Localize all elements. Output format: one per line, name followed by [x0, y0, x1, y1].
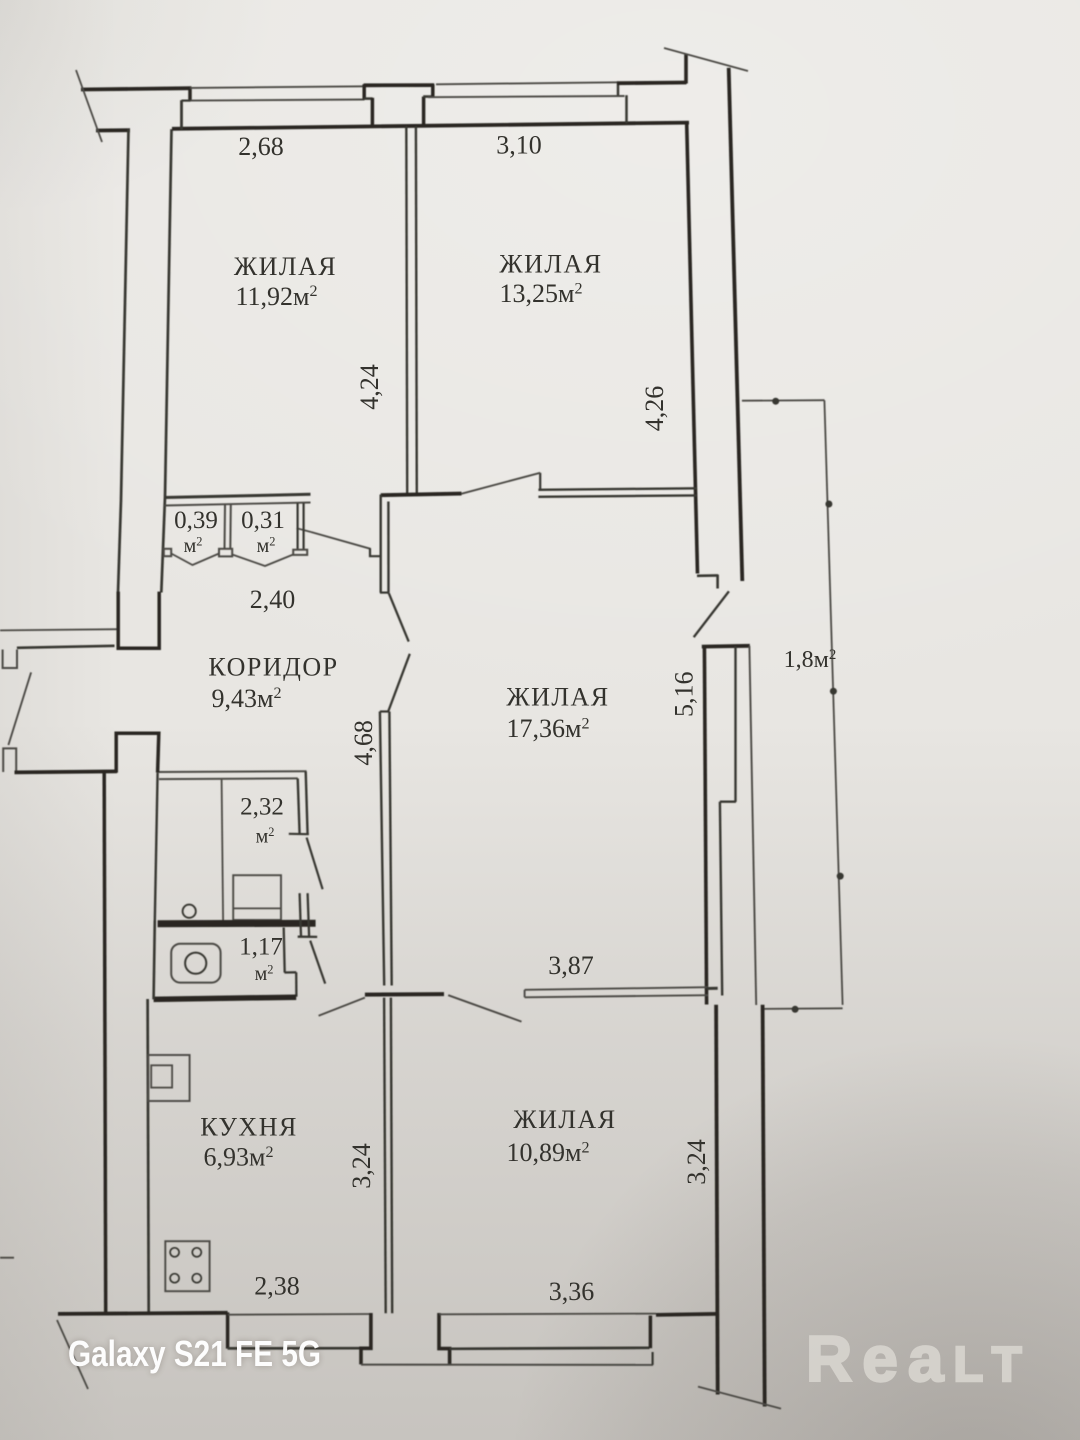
svg-text:ЖИЛАЯ: ЖИЛАЯ [513, 1105, 616, 1134]
svg-text:6,93м2: 6,93м2 [204, 1143, 274, 1172]
svg-text:9,43м2: 9,43м2 [212, 684, 282, 713]
svg-text:10,89м2: 10,89м2 [507, 1138, 590, 1167]
svg-text:КОРИДОР: КОРИДОР [208, 652, 338, 681]
svg-text:11,92м2: 11,92м2 [235, 282, 317, 311]
svg-text:0,31: 0,31 [241, 507, 285, 534]
svg-text:0,39: 0,39 [174, 507, 218, 534]
svg-text:3,24: 3,24 [682, 1139, 711, 1185]
svg-text:м2: м2 [256, 825, 275, 848]
svg-text:4,68: 4,68 [349, 720, 378, 766]
svg-text:1,17: 1,17 [239, 934, 283, 961]
svg-text:17,36м2: 17,36м2 [507, 714, 590, 743]
svg-text:3,24: 3,24 [347, 1143, 376, 1189]
svg-text:1,8м2: 1,8м2 [784, 647, 837, 673]
svg-text:ЖИЛАЯ: ЖИЛАЯ [506, 683, 609, 712]
svg-text:м2: м2 [184, 534, 203, 557]
svg-text:2,68: 2,68 [238, 132, 284, 161]
svg-text:м2: м2 [257, 534, 276, 557]
svg-text:3,87: 3,87 [548, 951, 594, 980]
svg-text:ЖИЛАЯ: ЖИЛАЯ [234, 252, 337, 281]
svg-text:4,24: 4,24 [355, 364, 384, 410]
svg-text:4,26: 4,26 [640, 386, 669, 432]
svg-text:5,16: 5,16 [669, 671, 698, 717]
svg-text:2,32: 2,32 [240, 794, 284, 821]
svg-text:2,38: 2,38 [254, 1272, 300, 1301]
svg-text:13,25м2: 13,25м2 [500, 279, 583, 308]
svg-text:ЖИЛАЯ: ЖИЛАЯ [499, 250, 602, 279]
svg-text:КУХНЯ: КУХНЯ [200, 1113, 298, 1142]
svg-text:3,36: 3,36 [549, 1277, 595, 1306]
svg-text:м2: м2 [255, 962, 274, 985]
svg-text:3,10: 3,10 [496, 131, 542, 160]
svg-text:2,40: 2,40 [250, 585, 296, 614]
